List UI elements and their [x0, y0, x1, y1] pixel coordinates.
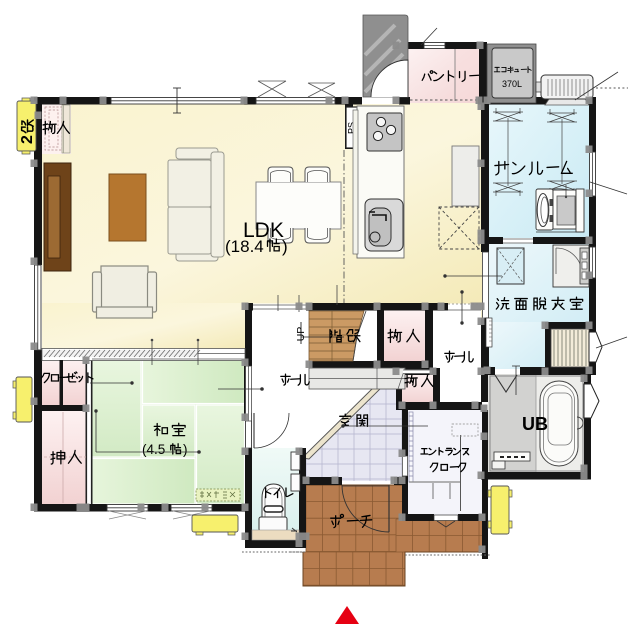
- svg-text:): ): [282, 237, 288, 256]
- svg-text:(18.4: (18.4: [225, 237, 264, 256]
- svg-text:UP: UP: [295, 327, 307, 342]
- svg-text:2: 2: [19, 135, 36, 144]
- svg-text:(4.5: (4.5: [142, 442, 165, 457]
- svg-text:): ): [183, 442, 188, 457]
- svg-text:370L: 370L: [502, 79, 522, 89]
- svg-text:UB: UB: [522, 414, 548, 434]
